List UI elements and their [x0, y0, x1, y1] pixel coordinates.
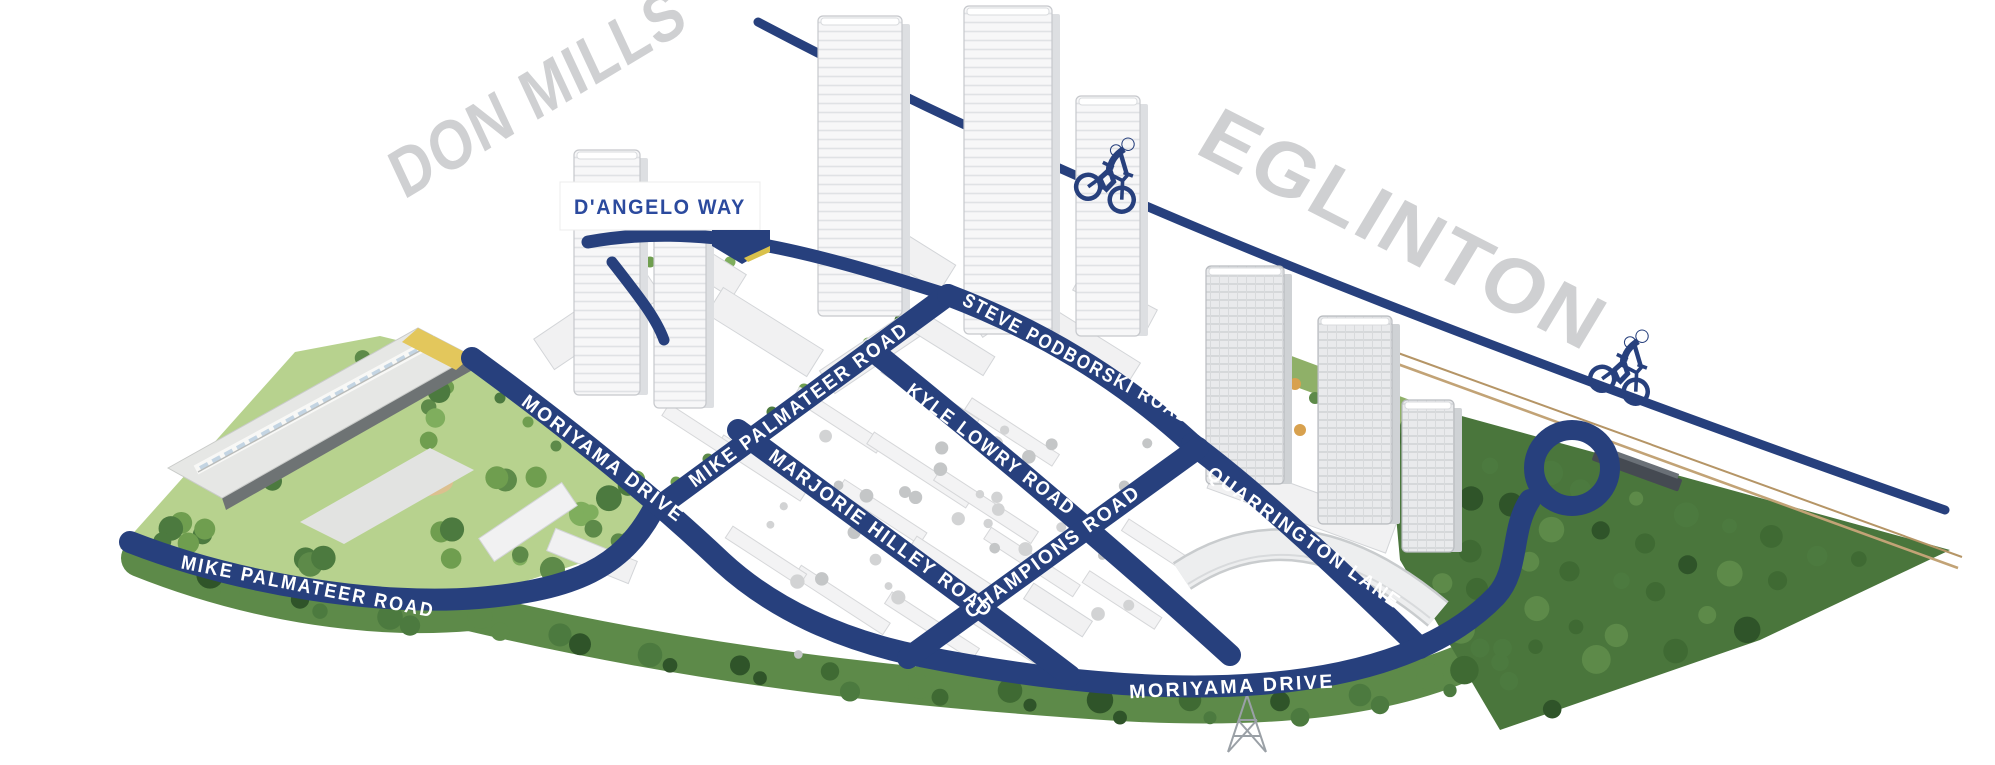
gray-tree — [991, 492, 1002, 503]
tree — [1635, 533, 1655, 553]
tree — [932, 689, 949, 706]
tree — [840, 681, 860, 701]
tower-face — [1076, 96, 1140, 336]
tree — [1768, 571, 1787, 590]
tree — [663, 658, 678, 673]
tree — [1493, 639, 1512, 658]
tree — [1113, 711, 1127, 725]
gray-tree — [1046, 438, 1058, 450]
tower-roof — [577, 152, 637, 159]
gray-tree — [870, 554, 882, 566]
tree — [1569, 620, 1584, 635]
tree — [426, 408, 446, 428]
gray-tree — [891, 590, 905, 604]
tower-face — [964, 6, 1052, 334]
tree — [730, 655, 750, 675]
gray-tree — [1123, 600, 1134, 611]
tree — [526, 467, 547, 488]
tower-roof — [967, 8, 1049, 15]
gray-tree — [780, 502, 788, 510]
tree — [1204, 711, 1217, 724]
tree — [753, 671, 767, 685]
tree — [1592, 521, 1610, 539]
tree — [583, 504, 599, 520]
tree — [441, 548, 462, 569]
tree — [1807, 546, 1828, 567]
gray-tree — [1000, 425, 1009, 434]
tree — [311, 546, 336, 571]
tower-face — [1318, 316, 1392, 524]
tower-gray — [1402, 400, 1462, 552]
tree — [1528, 640, 1542, 654]
tree — [1734, 617, 1761, 644]
tree — [548, 623, 571, 646]
tree — [1851, 551, 1867, 567]
tower-white — [1076, 96, 1148, 336]
garden-tree — [1294, 424, 1306, 436]
tree — [569, 633, 591, 655]
tree — [1646, 582, 1665, 601]
gray-tree — [790, 574, 804, 588]
tree — [1417, 664, 1444, 691]
tree — [821, 662, 839, 680]
gray-tree — [989, 543, 1000, 554]
gray-tree — [909, 491, 922, 504]
gray-tree — [885, 582, 893, 590]
tree — [1500, 672, 1519, 691]
tree — [194, 519, 215, 540]
street-tree — [551, 441, 562, 452]
gray-tree — [1142, 438, 1152, 448]
tower-roof — [821, 18, 899, 25]
tree — [1678, 555, 1697, 574]
tree — [1450, 656, 1478, 684]
gray-tree — [934, 462, 948, 476]
tree — [1291, 708, 1310, 727]
tree — [585, 520, 603, 538]
tree — [1459, 486, 1483, 510]
gray-tree — [899, 486, 911, 498]
tower-gray — [1318, 316, 1400, 524]
tree — [1539, 517, 1565, 543]
tree — [1698, 606, 1716, 624]
tree — [1482, 458, 1499, 475]
tree — [1613, 572, 1630, 589]
tree — [440, 517, 464, 541]
tree — [1524, 596, 1549, 621]
gray-tree — [819, 430, 832, 443]
gray-tree — [815, 572, 829, 586]
tree — [1760, 525, 1783, 548]
tree — [1432, 573, 1452, 593]
tree — [1629, 492, 1643, 506]
tree — [420, 432, 438, 450]
gray-tree — [983, 519, 992, 528]
tower-roof — [1079, 98, 1137, 105]
tree — [485, 466, 508, 489]
gray-tree — [935, 441, 948, 454]
tree — [1543, 700, 1562, 719]
tree — [1663, 639, 1688, 664]
gray-tree — [794, 650, 803, 659]
gray-tree — [766, 521, 774, 529]
tree — [1582, 645, 1611, 674]
gray-tree — [976, 490, 984, 498]
tower-roof — [1209, 268, 1281, 275]
tree — [1722, 518, 1737, 533]
tree — [1605, 624, 1628, 647]
tree — [1559, 561, 1579, 581]
site-plan-map: DON MILLS EGLINTON — [0, 0, 1995, 765]
tree — [1371, 696, 1389, 714]
building-block — [1024, 583, 1093, 637]
gray-tree — [992, 503, 1005, 516]
tree — [1459, 540, 1482, 563]
tree — [1470, 639, 1489, 658]
tree — [1443, 684, 1456, 697]
gray-tree — [952, 512, 965, 525]
tree — [512, 546, 529, 563]
gray-tree — [1091, 607, 1105, 621]
tree — [1717, 561, 1743, 587]
tower-face — [1402, 400, 1454, 552]
dangelo-way-label: D'ANGELO WAY — [574, 195, 746, 219]
tree — [312, 604, 327, 619]
tree — [1674, 502, 1699, 527]
tower-white — [964, 6, 1060, 334]
tree — [596, 485, 622, 511]
tree — [491, 622, 509, 640]
tree — [638, 643, 663, 668]
tree — [1349, 684, 1372, 707]
tower-roof — [1321, 318, 1389, 325]
building-block — [707, 288, 824, 377]
tree — [908, 675, 932, 699]
tower-roof — [1405, 402, 1451, 409]
marjorie-hilley-label: MARJORIE HILLEY ROAD — [765, 445, 998, 623]
tree — [1023, 699, 1036, 712]
gray-tree — [860, 489, 874, 503]
